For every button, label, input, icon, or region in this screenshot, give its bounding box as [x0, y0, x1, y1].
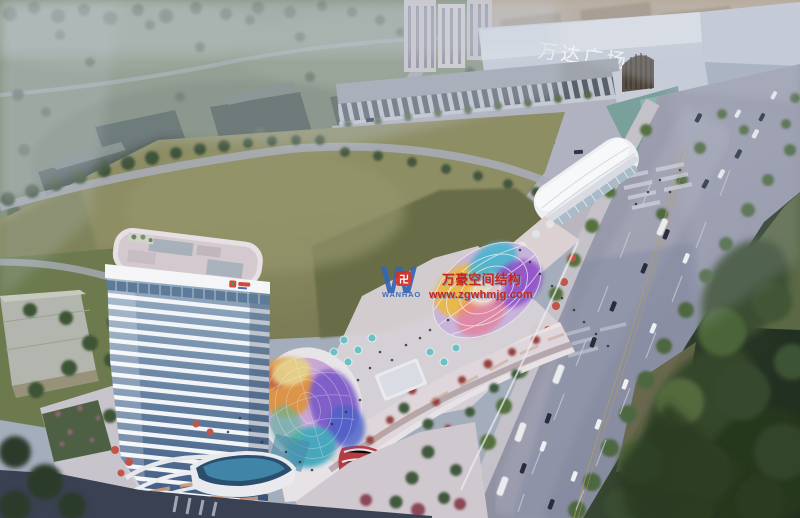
svg-text:WANHAO: WANHAO	[382, 290, 421, 299]
svg-text:卍: 卍	[399, 274, 409, 286]
svg-text:万豪空间结构: 万豪空间结构	[441, 272, 521, 287]
svg-text:www.zgwhmjg.com: www.zgwhmjg.com	[428, 289, 533, 301]
